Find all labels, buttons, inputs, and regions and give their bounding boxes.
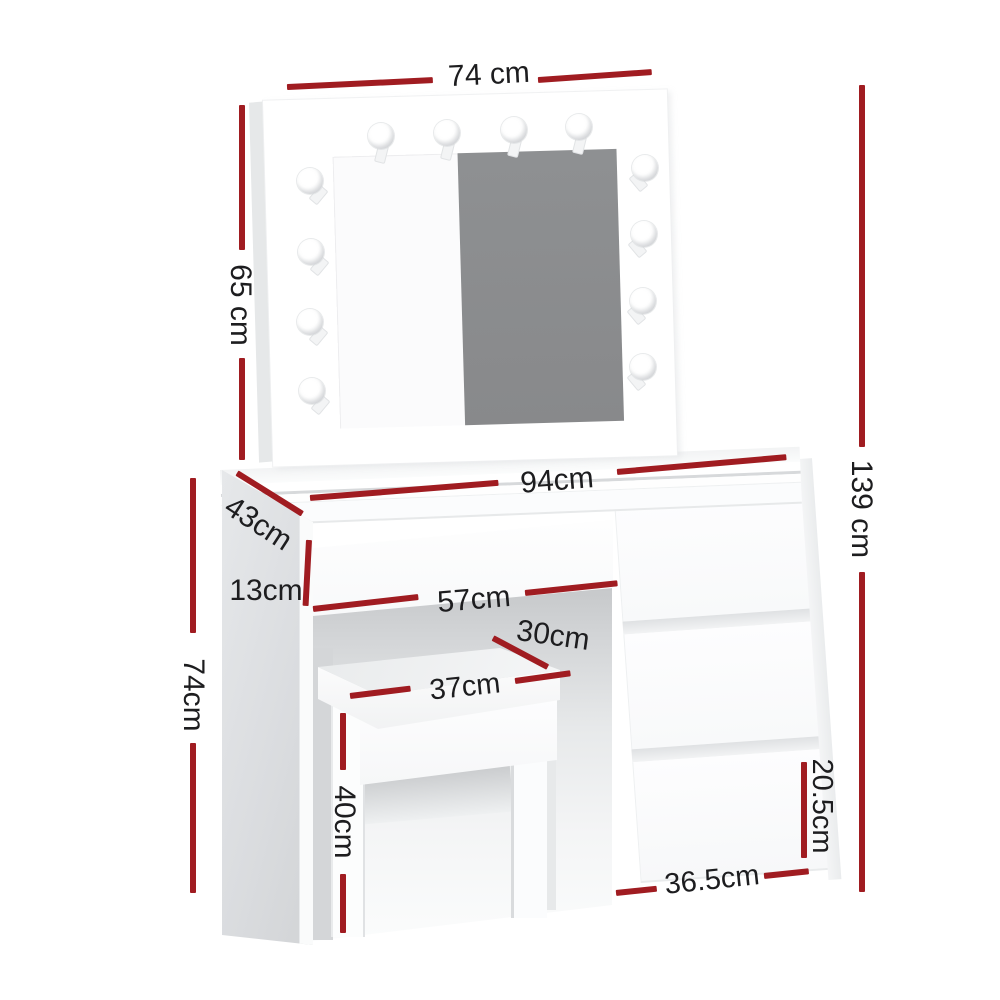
light-bulb <box>434 120 460 146</box>
light-bulb <box>631 221 657 247</box>
dim-mirror-height-line-a <box>239 105 245 250</box>
mirror-glass-reflection <box>457 149 624 425</box>
dim-mirror-width-label: 74 cm <box>428 57 549 93</box>
dim-total-height-line-a <box>859 85 865 447</box>
drawer-tower <box>612 459 829 891</box>
light-bulb <box>566 114 592 140</box>
dim-mirror-width-line-b <box>538 69 652 83</box>
light-bulb <box>299 378 325 404</box>
dim-drawer-height-label: 20.5cm <box>807 736 837 876</box>
dim-mirror-height-label: 65 cm <box>225 245 255 365</box>
dim-total-height-label: 139 cm <box>846 439 876 579</box>
light-bulb <box>298 239 324 265</box>
dim-desk-height-line-a <box>190 478 196 633</box>
dimension-diagram: 74 cm 65 cm 139 cm 94cm 43cm 13cm 57cm 3… <box>0 0 1000 1000</box>
tower-drawer-1 <box>614 491 810 622</box>
light-bulb <box>297 168 323 194</box>
light-bulb <box>632 155 658 181</box>
dim-stool-height-label: 40cm <box>329 762 359 882</box>
mirror-glass <box>333 149 624 429</box>
mirror-frame <box>263 89 677 466</box>
light-bulb <box>297 309 323 335</box>
dim-desk-height-label: 74cm <box>178 635 208 755</box>
dim-middle-drawer-height-label: 13cm <box>206 576 326 606</box>
light-bulb <box>630 288 656 314</box>
dim-mirror-height-line-b <box>239 358 245 460</box>
light-bulb <box>368 123 394 149</box>
mirror-glass-highlight <box>333 153 465 428</box>
dim-total-height-line-b <box>859 572 865 892</box>
light-bulb <box>501 117 527 143</box>
light-bulb <box>630 354 656 380</box>
dim-stool-height-line-b <box>340 874 346 933</box>
dim-mirror-width-line-a <box>287 77 433 90</box>
dim-desk-height-line-b <box>190 743 196 893</box>
tower-drawer-2 <box>623 621 819 749</box>
